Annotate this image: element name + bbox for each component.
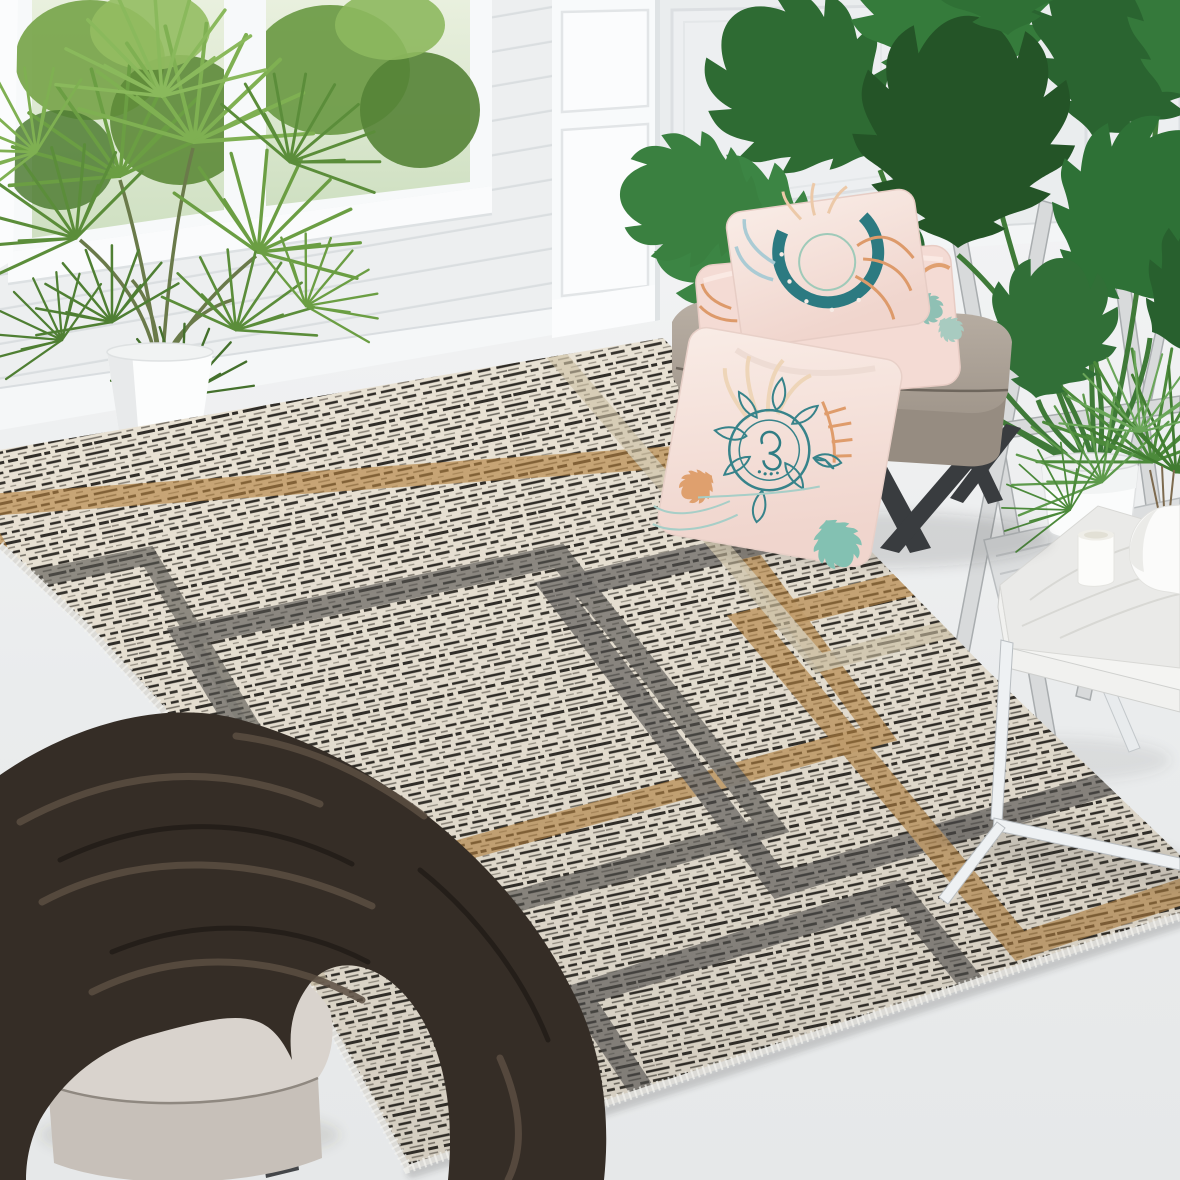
rug-room-photo xyxy=(0,0,1180,1180)
photo-stage xyxy=(0,0,1180,1180)
candle xyxy=(1078,530,1114,587)
